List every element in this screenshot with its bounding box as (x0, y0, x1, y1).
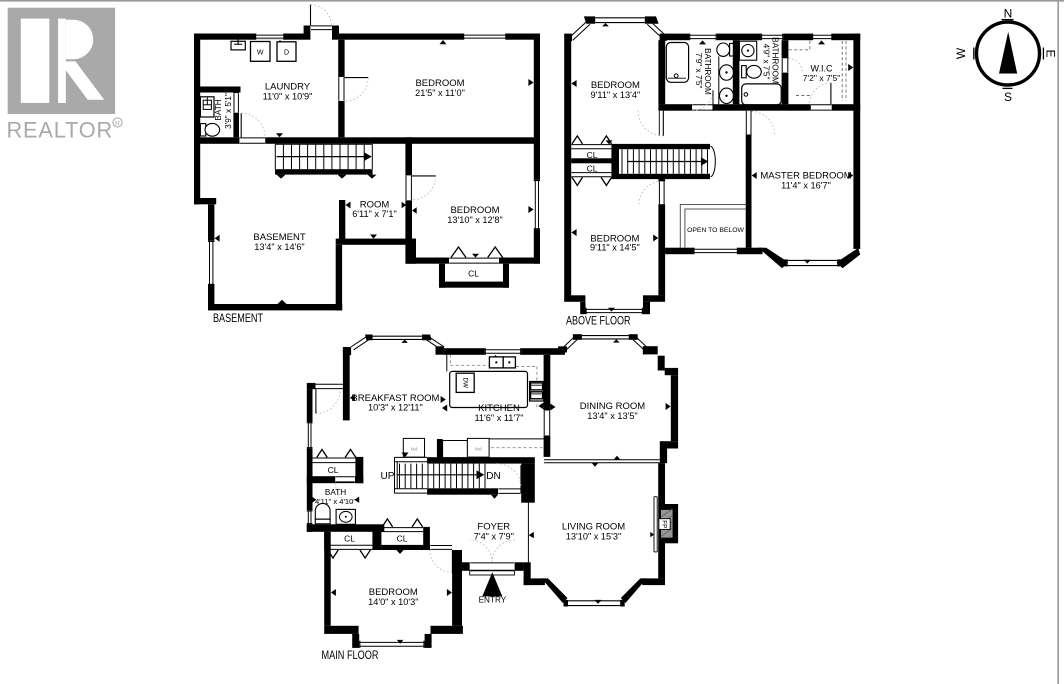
svg-text:7'4" x 7'9": 7'4" x 7'9" (474, 531, 514, 541)
svg-text:N: N (1004, 7, 1013, 21)
svg-text:7'2" x 7'5": 7'2" x 7'5" (803, 73, 841, 83)
svg-text:10'3" x 12'11": 10'3" x 12'11" (368, 403, 423, 413)
svg-text:13'10" x 15'3": 13'10" x 15'3" (566, 531, 622, 541)
svg-text:UP: UP (381, 471, 395, 482)
svg-text:13'4" x 13'5": 13'4" x 13'5" (587, 411, 637, 421)
svg-text:Md: Md (411, 446, 418, 452)
svg-text:BATH: BATH (214, 99, 223, 120)
svg-text:ABOVE FLOOR: ABOVE FLOOR (566, 316, 631, 328)
svg-text:OPEN TO BELOW: OPEN TO BELOW (687, 227, 744, 234)
svg-text:D: D (284, 50, 289, 57)
svg-text:BATH: BATH (325, 488, 346, 497)
svg-text:W.I.C: W.I.C (811, 64, 833, 74)
svg-text:REALTOR: REALTOR (7, 118, 114, 143)
svg-text:W: W (954, 47, 968, 59)
svg-text:Md: Md (475, 446, 482, 452)
svg-text:BASEMENT: BASEMENT (213, 313, 263, 325)
svg-text:CL: CL (587, 164, 598, 174)
svg-text:11'0" x 10'9": 11'0" x 10'9" (263, 92, 313, 102)
svg-text:6'11" x 7'1": 6'11" x 7'1" (352, 209, 397, 219)
svg-text:4'9" x 7'5": 4'9" x 7'5" (761, 44, 770, 80)
svg-text:MAIN FLOOR: MAIN FLOOR (322, 650, 379, 662)
svg-text:11'4" x 16'7": 11'4" x 16'7" (781, 181, 831, 191)
svg-text:ENTRY: ENTRY (479, 596, 507, 605)
svg-text:W: W (257, 50, 264, 57)
svg-text:21'5" x 11'0": 21'5" x 11'0" (415, 88, 465, 98)
svg-text:9'11" x 13'4": 9'11" x 13'4" (591, 90, 641, 100)
svg-text:3'9" x 5'1": 3'9" x 5'1" (224, 93, 233, 129)
svg-text:DW: DW (462, 378, 469, 388)
svg-text:R: R (115, 121, 120, 128)
svg-text:BATHROOM: BATHROOM (703, 48, 712, 95)
svg-text:CL: CL (397, 534, 408, 544)
svg-text:9'11" x 14'5": 9'11" x 14'5" (590, 242, 640, 252)
svg-text:7'9" x 7'5": 7'9" x 7'5" (694, 53, 703, 89)
svg-text:11'6" x 11'7": 11'6" x 11'7" (474, 413, 523, 423)
svg-text:E: E (1044, 49, 1058, 57)
svg-text:CL: CL (328, 465, 339, 475)
svg-text:13'4" x 14'6": 13'4" x 14'6" (254, 242, 304, 252)
svg-text:CL: CL (344, 534, 355, 544)
svg-text:FP: FP (661, 520, 668, 528)
svg-text:DN: DN (486, 471, 500, 482)
svg-text:CL: CL (468, 269, 479, 279)
svg-text:BATHROOM: BATHROOM (771, 37, 780, 84)
svg-text:14'0" x 10'3": 14'0" x 10'3" (368, 597, 418, 607)
svg-text:S: S (1004, 90, 1012, 104)
svg-text:13'10" x 12'8": 13'10" x 12'8" (447, 215, 503, 225)
